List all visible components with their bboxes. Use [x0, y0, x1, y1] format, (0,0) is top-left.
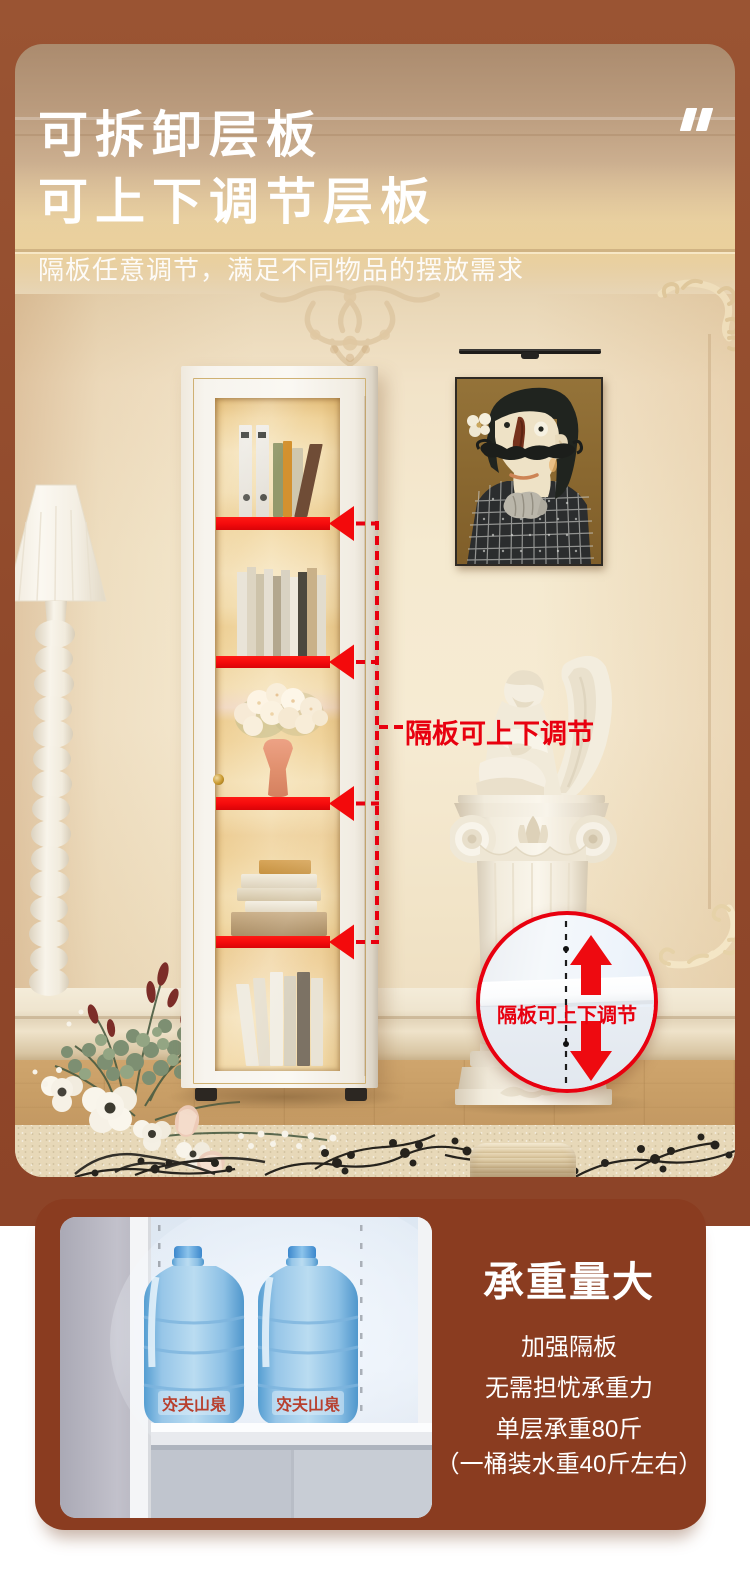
svg-text:泉山夫农: 泉山夫农 [276, 1395, 340, 1414]
svg-text:泉山夫农: 泉山夫农 [162, 1395, 226, 1414]
